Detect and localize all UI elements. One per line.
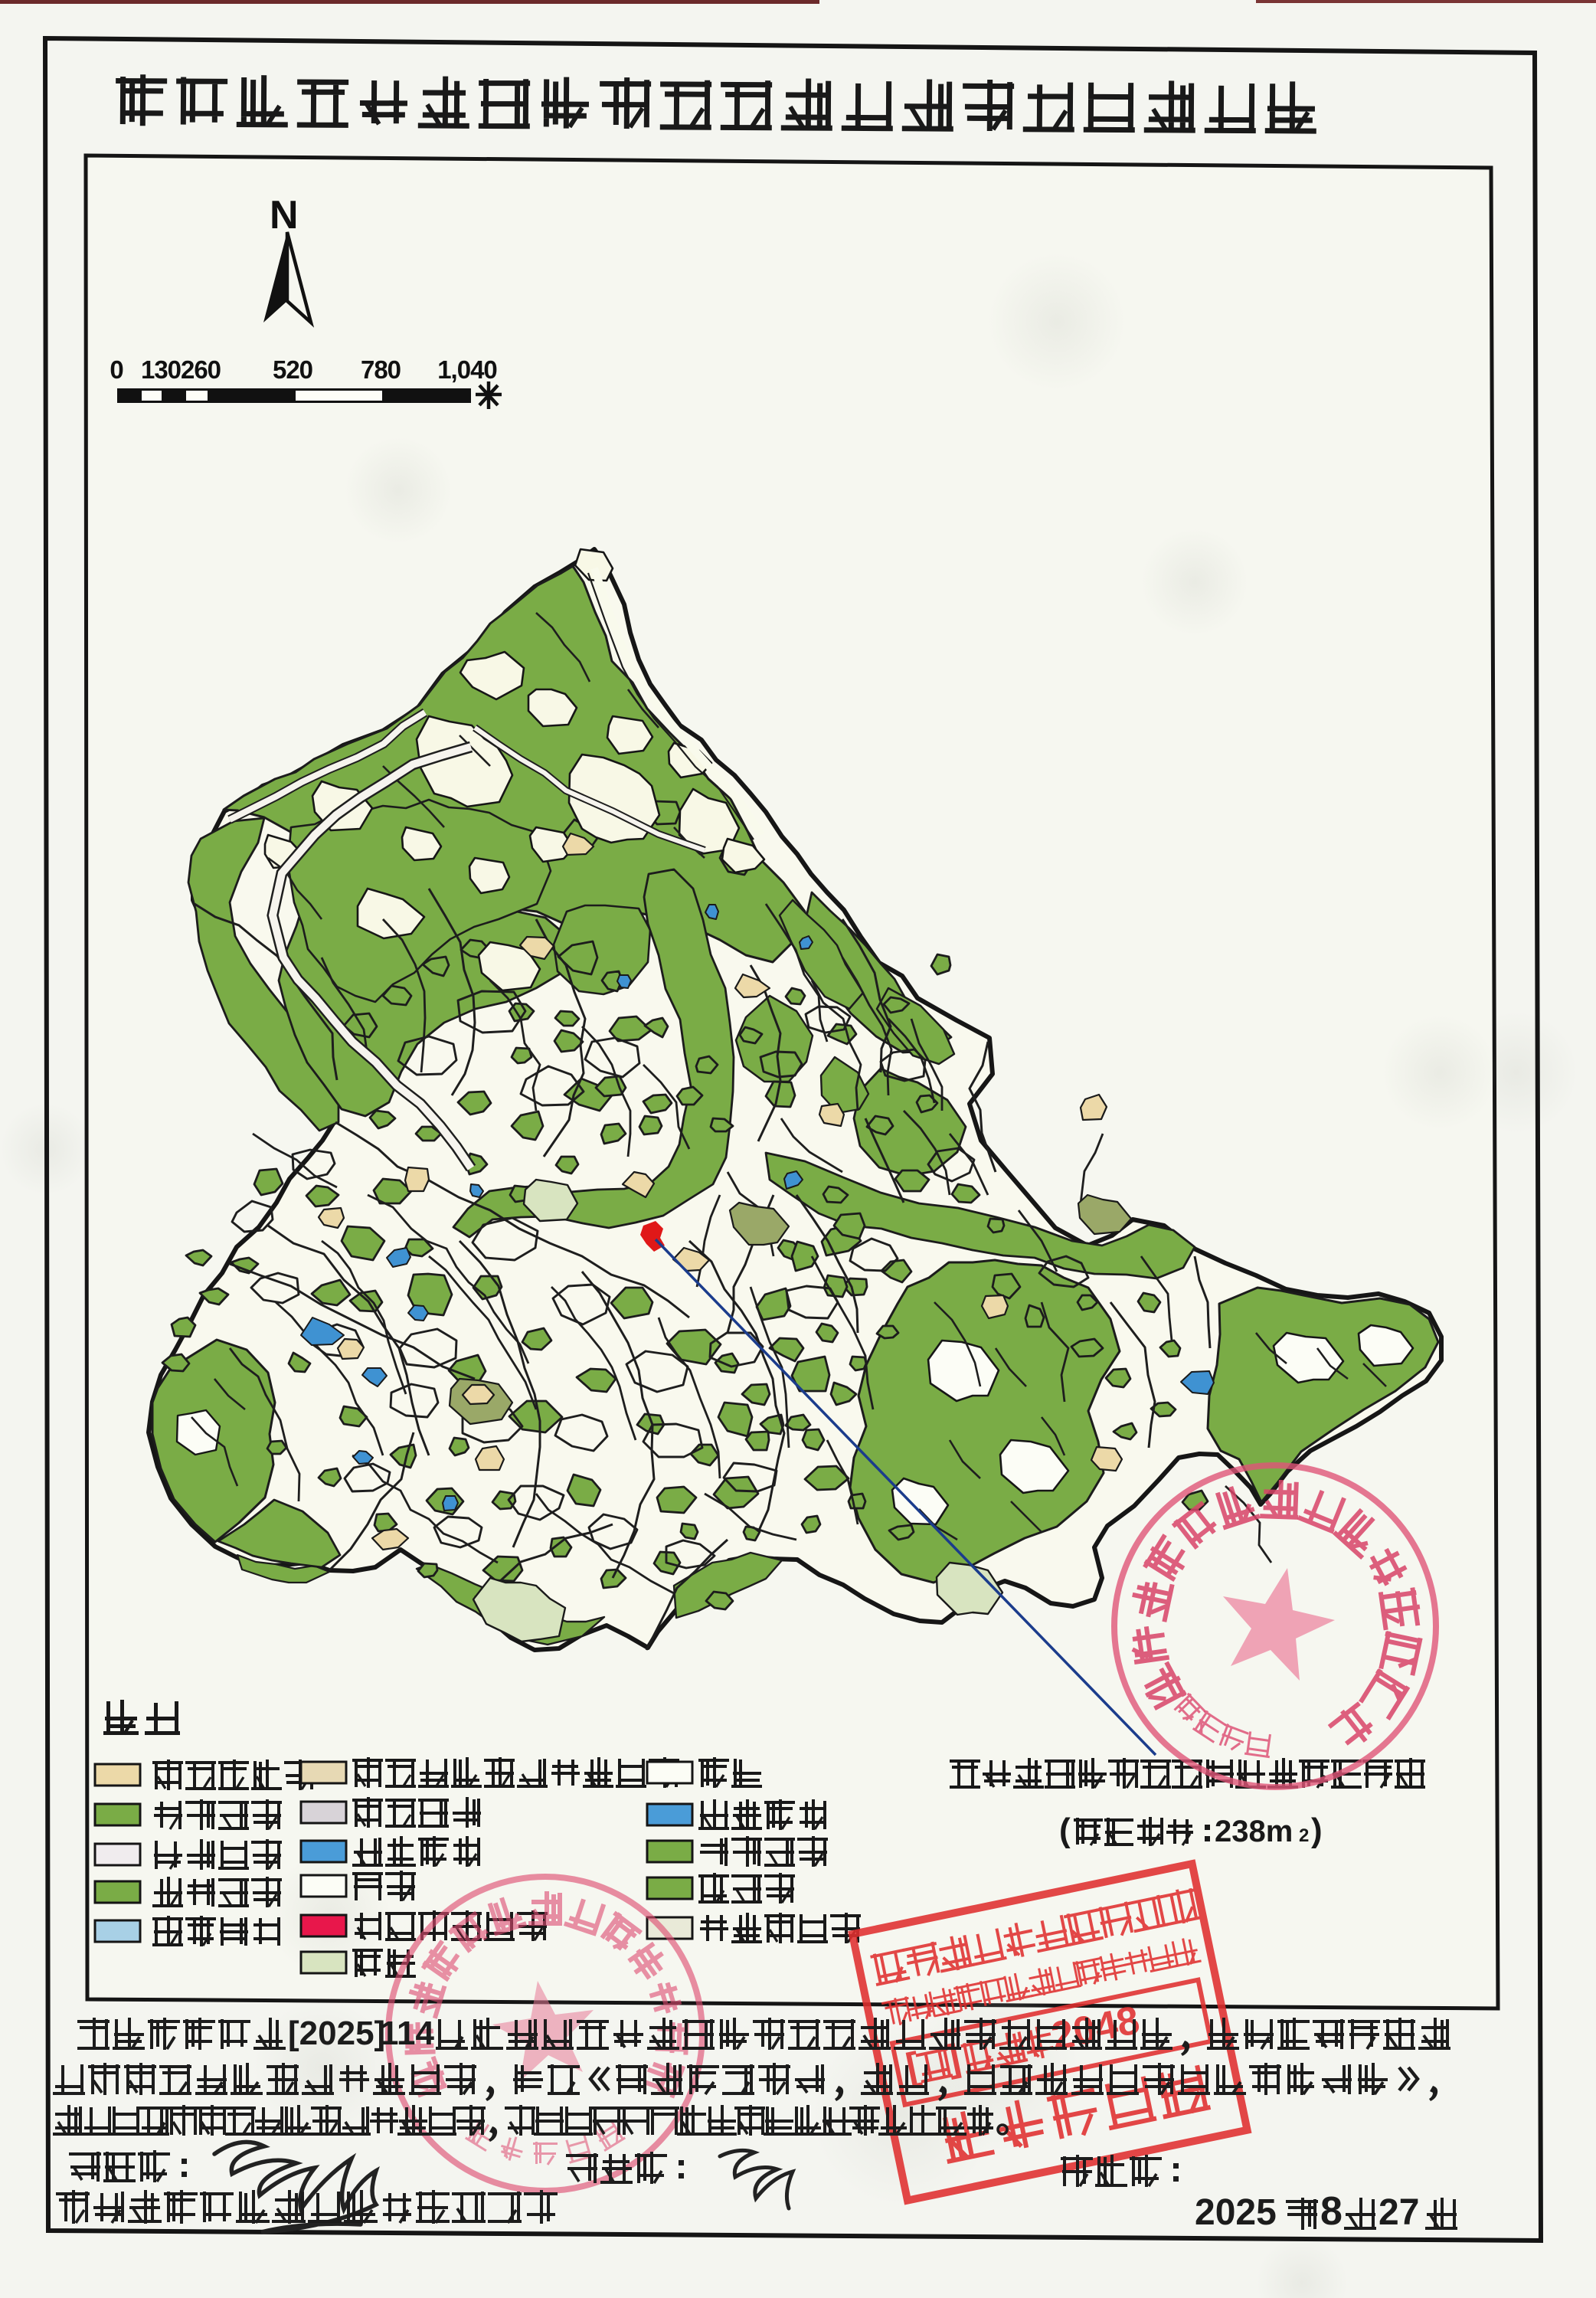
svg-text:1,040: 1,040: [437, 355, 497, 384]
svg-text:114: 114: [380, 2015, 435, 2052]
svg-text:27: 27: [1379, 2192, 1419, 2233]
svg-text:): ): [1311, 1812, 1323, 1849]
svg-text:520: 520: [273, 355, 312, 384]
svg-text:0: 0: [110, 355, 123, 384]
svg-text:[2025]: [2025]: [288, 2015, 385, 2052]
svg-text:8: 8: [1320, 2189, 1343, 2234]
svg-text:260: 260: [181, 355, 221, 384]
svg-text:2025: 2025: [1195, 2192, 1277, 2233]
svg-text:(: (: [1059, 1812, 1071, 1849]
svg-text:238m: 238m: [1215, 1815, 1293, 1848]
svg-text:N: N: [270, 193, 299, 237]
svg-text:2: 2: [1299, 1825, 1309, 1846]
svg-text:780: 780: [361, 355, 401, 384]
svg-text:130: 130: [141, 355, 181, 384]
